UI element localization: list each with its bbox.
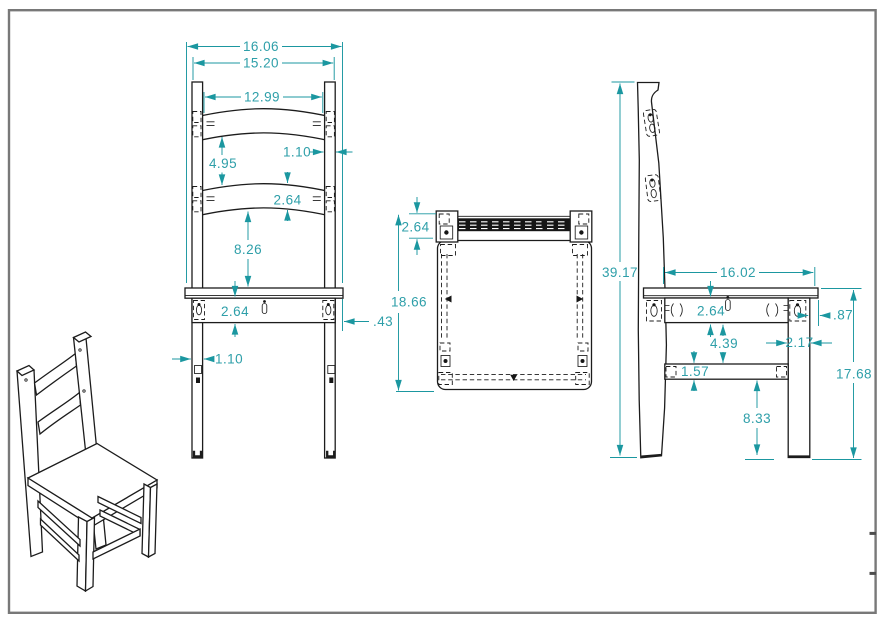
back-post-top-right <box>570 211 592 242</box>
dim-side-seat-depth: 16.02 <box>720 265 756 280</box>
dim-front-overall-width: 16.06 <box>243 39 279 54</box>
back-slat-upper <box>35 354 77 396</box>
dim-side-seat-front-overhang: .87 <box>833 308 853 323</box>
dim-side-stretcher-height: 1.57 <box>681 364 709 379</box>
front-left-leg <box>77 517 95 591</box>
dim-side-leg-depth: 2.17 <box>785 335 813 350</box>
dim-front-post-width: 1.10 <box>283 145 311 160</box>
front-view: 16.06 15.20 12.99 4.95 1.10 2.64 8.26 2.… <box>172 39 393 458</box>
upper-back-slat <box>197 109 331 141</box>
right-post <box>325 82 336 458</box>
dim-front-slat-to-seat: 8.26 <box>234 242 262 257</box>
front-geometry <box>185 82 343 458</box>
dim-top-overall-depth: 18.66 <box>391 295 427 310</box>
dim-front-outside-posts-width: 15.20 <box>243 56 279 71</box>
dim-side-seat-height: 17.68 <box>836 367 872 382</box>
back-post-top-left <box>436 211 458 242</box>
dim-front-slat-thickness: 2.64 <box>273 193 301 208</box>
lower-back-slat <box>197 184 331 216</box>
dim-front-leg-width: 1.10 <box>215 352 243 367</box>
leg-dowel-marks <box>195 366 335 384</box>
drawing-sheet: 16.06 15.20 12.99 4.95 1.10 2.64 8.26 2.… <box>0 0 884 625</box>
dim-side-apron-to-stretcher: 4.39 <box>710 336 738 351</box>
top-geometry <box>436 211 592 390</box>
front-leg-side <box>788 298 810 458</box>
seat-board <box>185 288 343 298</box>
dim-top-back-depth: 2.64 <box>401 220 429 235</box>
side-view: 39.17 16.02 2.64 .87 4.39 2.17 1.57 8.33… <box>602 82 872 460</box>
back-slat-lower <box>38 393 81 435</box>
dim-front-slat-spacing: 4.95 <box>209 156 237 171</box>
dim-front-slat-width: 12.99 <box>244 90 280 105</box>
drawing-canvas: 16.06 15.20 12.99 4.95 1.10 2.64 8.26 2.… <box>0 0 884 625</box>
dim-front-apron-height: 2.64 <box>221 304 249 319</box>
isometric-view <box>17 332 157 591</box>
dim-side-apron-height: 2.64 <box>697 304 725 319</box>
dim-front-seat-overhang: .43 <box>373 314 393 329</box>
top-view: 2.64 18.66 <box>391 197 592 392</box>
rear-left-post <box>17 370 43 557</box>
dim-side-stretcher-to-floor: 8.33 <box>743 411 771 426</box>
seat-board-side <box>644 288 819 298</box>
seat-outline <box>438 241 592 390</box>
left-post <box>192 82 203 458</box>
front-right-leg <box>142 484 157 557</box>
back-post-profile <box>638 83 667 458</box>
dim-side-overall-height: 39.17 <box>602 265 638 280</box>
top-dimensions: 2.64 18.66 <box>391 197 436 392</box>
